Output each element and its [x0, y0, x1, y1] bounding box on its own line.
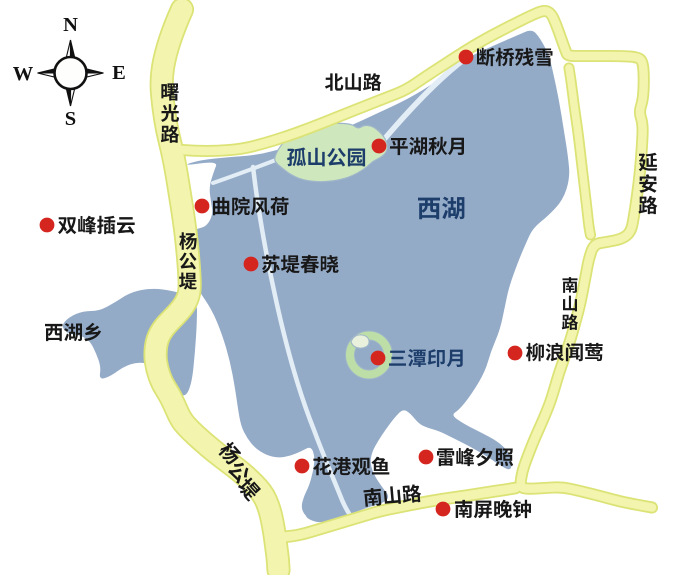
svg-text:W: W: [13, 63, 34, 85]
svg-text:E: E: [112, 62, 126, 84]
svg-text:N: N: [63, 14, 78, 36]
svg-text:S: S: [65, 108, 76, 130]
